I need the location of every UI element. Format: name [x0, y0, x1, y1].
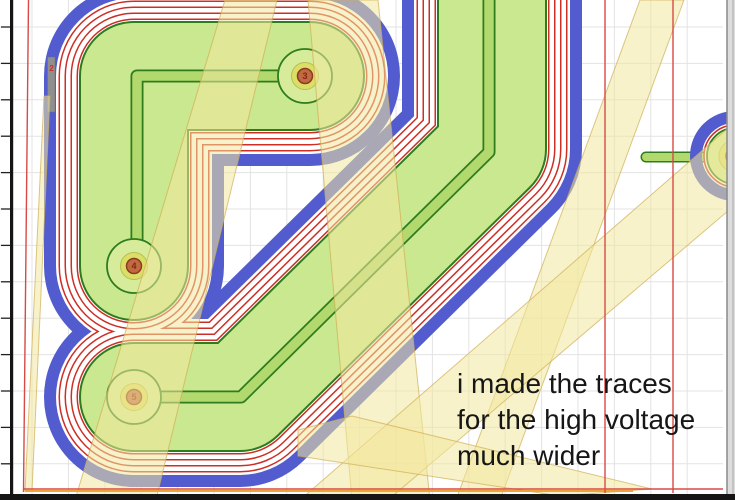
- annotation-line-1: i made the traces: [457, 366, 695, 402]
- pad-number-label: 4: [131, 261, 136, 271]
- marker-number-label: 2: [49, 64, 54, 73]
- annotation-line-2: for the high voltage: [457, 402, 695, 438]
- pad-number-label: 3: [302, 71, 307, 81]
- user-annotation: i made the traces for the high voltage m…: [457, 366, 695, 474]
- bottom-border: [0, 494, 735, 500]
- right-scroll-panel[interactable]: [727, 0, 735, 494]
- cam-viewport: 3452 i made the traces for the high volt…: [0, 0, 735, 500]
- annotation-line-3: much wider: [457, 438, 695, 474]
